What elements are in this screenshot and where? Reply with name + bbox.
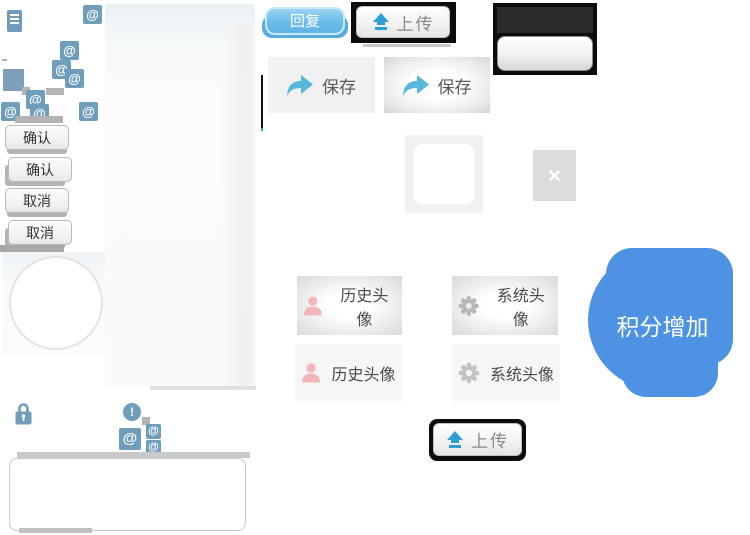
panel-shadow [150,386,256,390]
menu-list-icon[interactable] [7,10,22,32]
history-avatar-button[interactable]: 历史头像 [297,276,402,335]
system-avatar-button[interactable]: 系统头像 [452,276,558,335]
at-mention-icon[interactable]: @ [146,424,161,439]
cancel-button[interactable]: 取消 [8,220,72,245]
avatar-circle-placeholder[interactable] [9,256,103,350]
share-arrow-icon [287,75,313,96]
share-arrow-icon [403,75,429,96]
gray-bar [19,528,92,533]
avatar-preview-panel [2,252,105,355]
dark-widget-frame [493,3,597,75]
save-button[interactable]: 保存 [268,57,375,113]
dark-widget-header [497,7,593,33]
upload-button[interactable]: 上传 [433,423,522,456]
save-button[interactable]: 保存 [384,57,490,113]
cancel-button[interactable]: 取消 [5,188,69,213]
at-mention-icon[interactable]: @ [79,102,98,121]
close-button[interactable]: × [533,150,576,201]
upload-arrow-icon [372,13,390,31]
upload-button-frame: 上传 [429,419,526,461]
lock-icon[interactable] [15,402,32,425]
system-avatar-label: 系统头像 [489,282,552,330]
upload-button-label: 上传 [471,427,509,452]
image-crop-frame [405,135,483,213]
divider [2,59,7,61]
gray-bar [15,116,63,123]
gear-icon [458,362,480,384]
at-mention-icon[interactable]: @ [65,69,84,88]
gray-bar [46,88,64,95]
gray-bar [0,245,64,252]
at-mention-icon[interactable]: @ [60,41,79,60]
points-increase-badge: 积分增加 [588,248,733,398]
history-avatar-label: 历史头像 [331,361,395,385]
exclamation-icon[interactable]: ! [123,403,141,421]
sprite-canvas: { "labels": { "reply": "回复", "upload": "… [0,0,750,535]
cursor-line [261,75,263,128]
text-input-panel[interactable] [9,458,246,531]
points-increase-label: 积分增加 [590,308,735,342]
history-avatar-button[interactable]: 历史头像 [295,344,402,401]
blue-square-icon[interactable] [3,69,24,91]
glossy-blank-button[interactable] [497,36,593,71]
confirm-button[interactable]: 确认 [8,157,72,182]
upload-button-label: 上传 [397,10,435,35]
save-button-label: 保存 [438,73,472,98]
scroll-panel[interactable] [105,4,255,386]
system-avatar-label: 系统头像 [490,361,554,385]
save-button-label: 保存 [322,73,356,98]
upload-button-frame: 上传 [351,2,456,43]
at-mention-icon[interactable]: @ [83,5,102,24]
button-shadow [363,44,451,47]
reply-button[interactable]: 回复 [265,7,345,35]
scrollbar-track[interactable] [221,24,255,386]
person-icon [301,363,321,383]
upload-arrow-icon [446,431,464,449]
gear-icon [458,295,479,317]
upload-button[interactable]: 上传 [356,6,450,38]
image-crop-area[interactable] [414,144,474,204]
history-avatar-label: 历史头像 [333,282,396,330]
person-icon [303,296,323,316]
confirm-button[interactable]: 确认 [5,125,69,150]
at-mention-icon[interactable]: @ [119,428,141,450]
system-avatar-button[interactable]: 系统头像 [452,344,560,401]
